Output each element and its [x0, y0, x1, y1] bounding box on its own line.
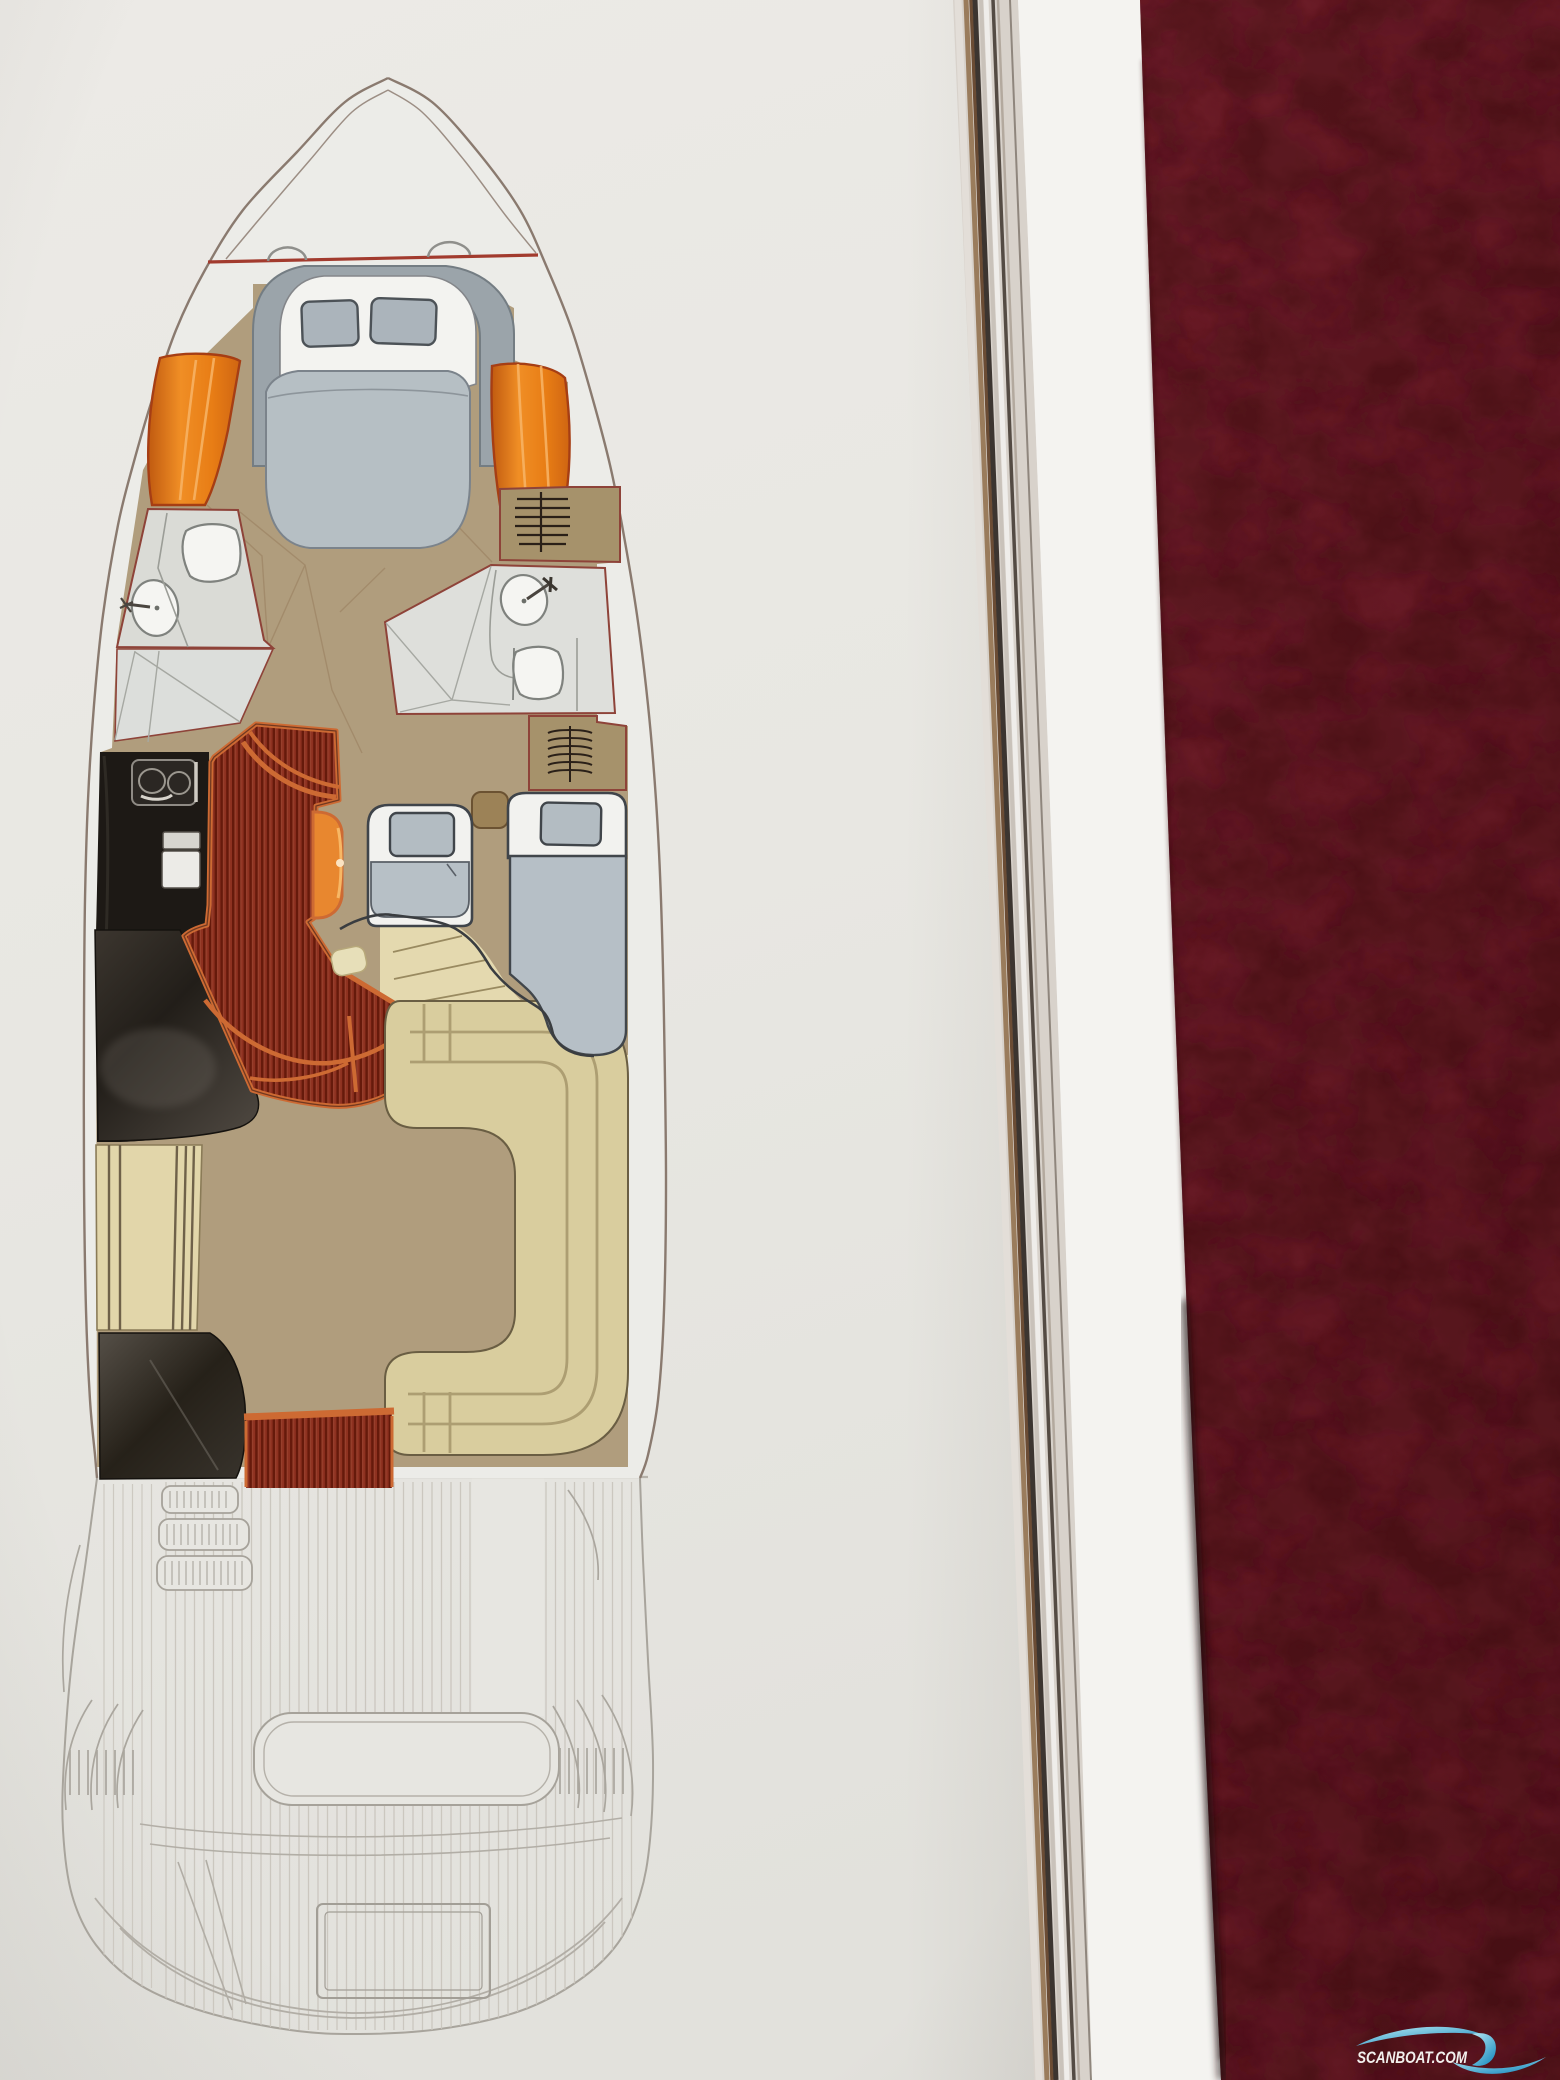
svg-text:SCANBOAT.COM: SCANBOAT.COM [1357, 2048, 1468, 2067]
